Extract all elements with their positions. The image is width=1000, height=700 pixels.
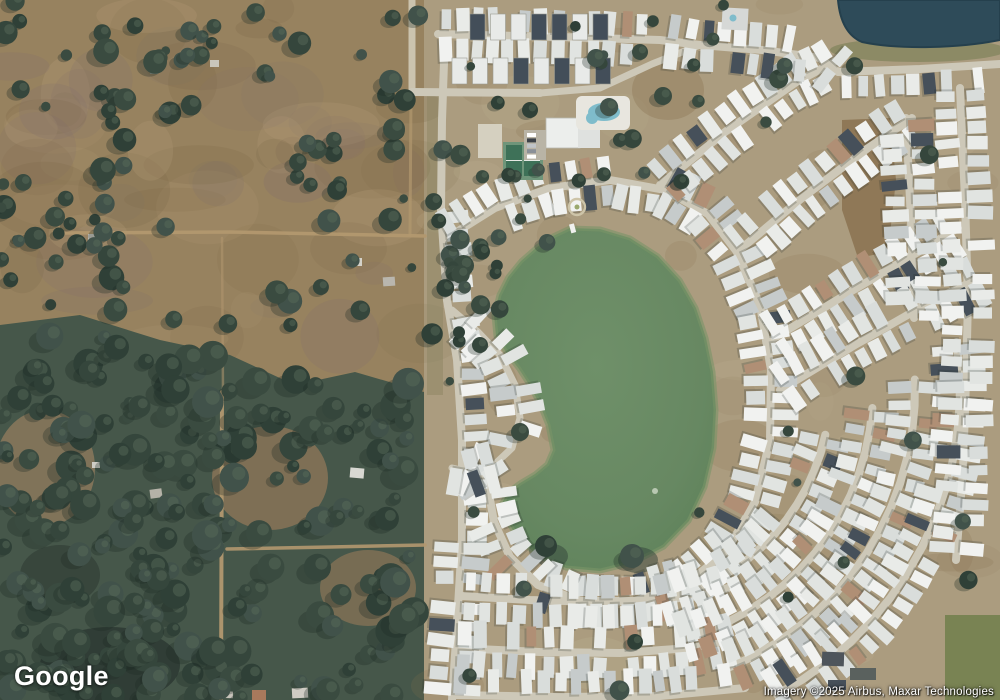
clubhouse <box>546 118 580 148</box>
storage-building <box>552 14 567 40</box>
map-viewport[interactable]: Google Imagery ©2025 Airbus, Maxar Techn… <box>0 0 1000 700</box>
google-logo[interactable]: Google <box>14 661 109 692</box>
storage-building <box>470 14 485 40</box>
storage-building <box>452 58 467 84</box>
parked-car <box>527 144 536 148</box>
storage-building <box>534 58 549 84</box>
storage-building <box>493 58 508 84</box>
storage-building <box>473 58 488 84</box>
clubhouse-annex <box>578 128 600 148</box>
storage-building <box>532 14 547 40</box>
storage-building <box>593 14 608 40</box>
parked-car <box>527 155 536 159</box>
storage-building <box>514 58 529 84</box>
parked-car <box>527 149 536 153</box>
storage-building <box>511 14 526 40</box>
pond <box>838 0 1000 47</box>
satellite-imagery <box>0 0 1000 700</box>
imagery-attribution: Imagery ©2025 Airbus, Maxar Technologies <box>764 686 994 698</box>
parked-car <box>527 133 536 137</box>
shuffleboard-courts <box>478 124 502 158</box>
storage-building <box>491 14 506 40</box>
parked-car <box>527 138 536 142</box>
storage-building <box>555 58 570 84</box>
